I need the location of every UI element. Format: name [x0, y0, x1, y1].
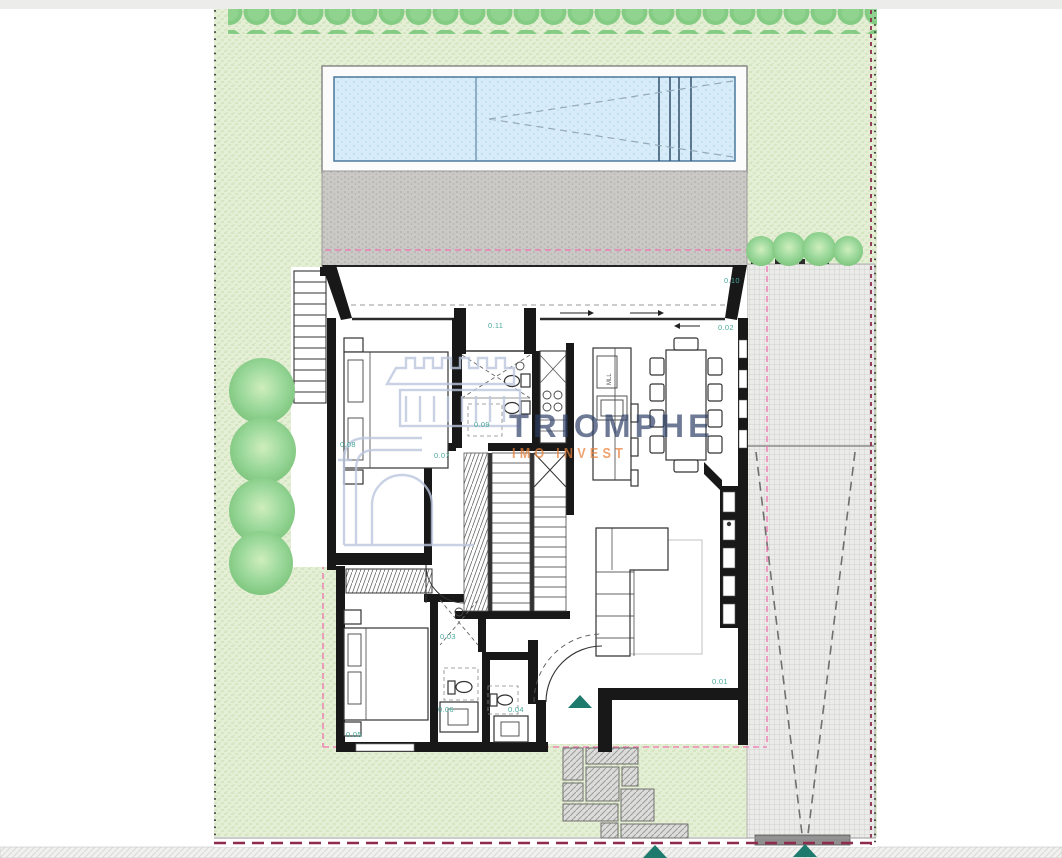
stair-ramp-hatch — [464, 453, 488, 611]
room-label-0-09: 0.09 — [474, 420, 490, 429]
floor-plan-page: MLL — [0, 0, 1062, 858]
nightstand — [344, 610, 361, 624]
room-label-0-03: 0.03 — [440, 632, 456, 641]
room-label-0-05: 0.05 — [346, 730, 362, 739]
watermark-brand-text: TRIOMPHE — [509, 408, 714, 444]
tree-icon — [229, 531, 293, 595]
toilet-icon — [498, 695, 513, 705]
nightstand — [344, 470, 363, 484]
bush-icon — [746, 236, 776, 266]
exterior-stair — [294, 267, 327, 403]
watermark-tagline-text: IMO INVEST — [512, 445, 627, 462]
toilet-icon — [456, 682, 472, 693]
room-label-0-06: 0.06 — [438, 705, 454, 714]
wardrobe-icon — [346, 569, 432, 593]
site-plan-drawing: MLL — [0, 0, 1062, 858]
room-label-0-10: 0.10 — [724, 276, 740, 285]
kitchen-island-label: MLL — [607, 373, 613, 385]
bush-icon — [802, 232, 836, 266]
nightstand — [344, 338, 363, 352]
room-label-0-01: 0.01 — [712, 677, 728, 686]
house: MLL — [322, 265, 748, 752]
swimming-pool — [322, 66, 747, 172]
street-strip — [0, 847, 1062, 858]
tree-icon — [229, 358, 295, 424]
room-label-0-04: 0.04 — [508, 705, 524, 714]
bush-icon — [772, 232, 806, 266]
tree-icon — [230, 418, 296, 484]
room-label-0-11: 0.11 — [488, 321, 503, 330]
bed-icon — [344, 628, 428, 720]
pool-deck-terrace — [322, 171, 747, 267]
room-label-0-08: 0.08 — [340, 440, 356, 449]
room-label-0-02: 0.02 — [718, 323, 734, 332]
staircase — [464, 453, 566, 611]
pool-water — [334, 77, 735, 161]
driveway — [747, 264, 875, 845]
page-top-strip — [0, 0, 1062, 9]
bush-icon — [833, 236, 863, 266]
room-label-0-07: 0.07 — [434, 451, 450, 460]
vanity — [494, 716, 528, 742]
